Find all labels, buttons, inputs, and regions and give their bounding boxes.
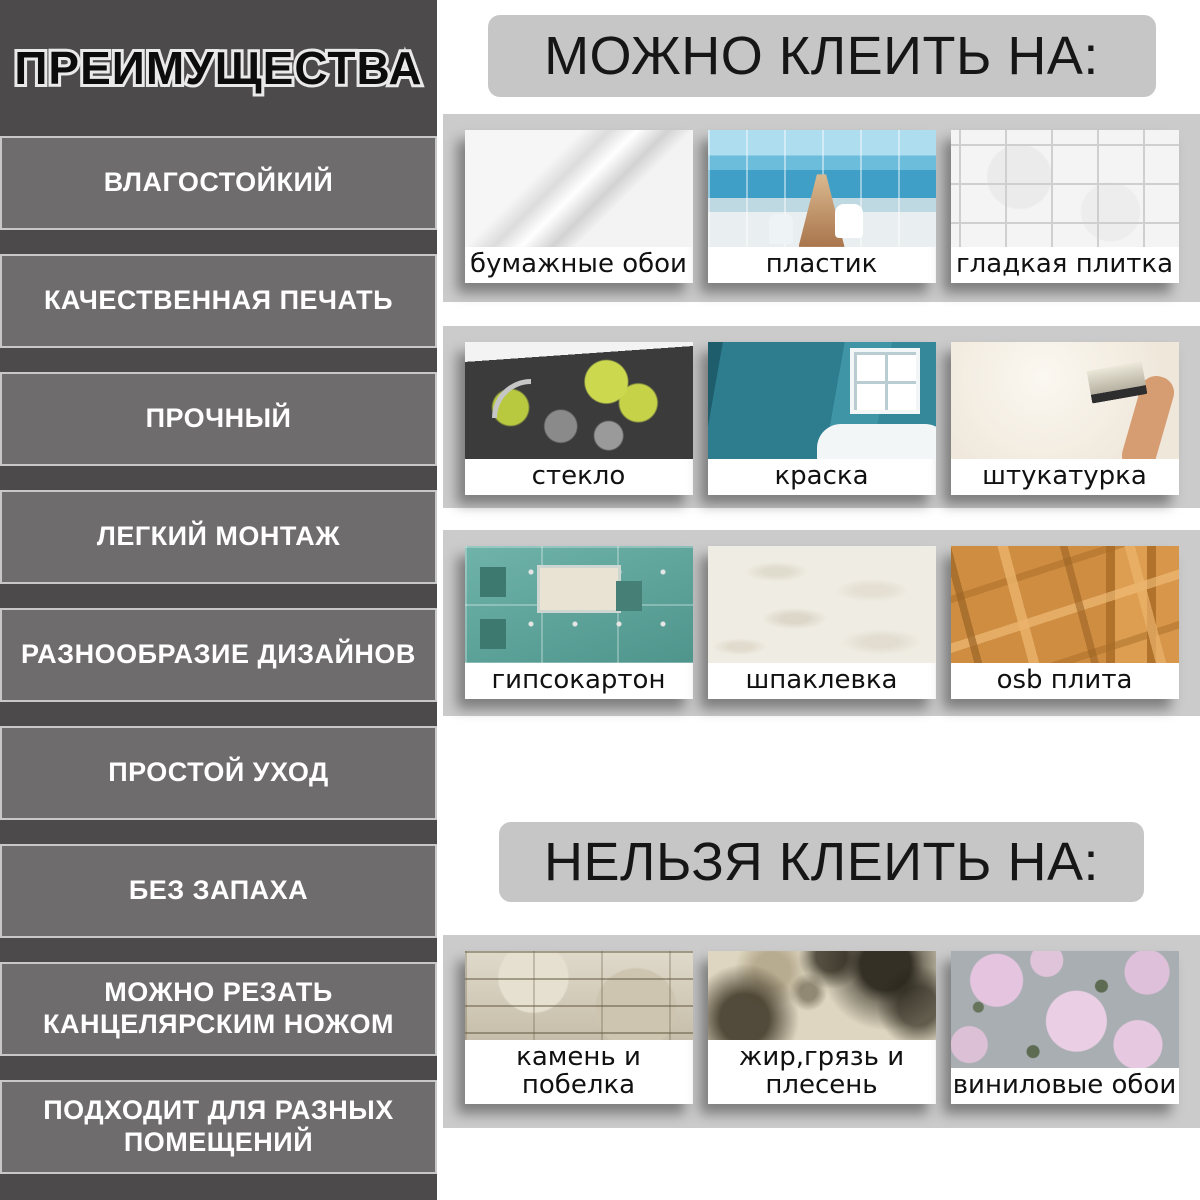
surface-card-stone-whitewash: камень и побелка (465, 951, 693, 1104)
cannot-glue-header: НЕЛЬЗЯ КЛЕИТЬ НА: (499, 822, 1144, 902)
stone-wall-photo (465, 951, 693, 1040)
surface-card-paint: краска (708, 342, 936, 495)
surface-label: жир,грязь и плесень (708, 1040, 936, 1104)
surface-label: краска (708, 459, 936, 495)
surface-label: стекло (465, 459, 693, 495)
osb-board-photo (951, 546, 1179, 663)
infographic-root: ПРЕИМУЩЕСТВА ВЛАГОСТОЙКИЙ КАЧЕСТВЕННАЯ П… (0, 0, 1200, 1200)
surface-card-putty: шпаклевка (708, 546, 936, 699)
advantage-item-easy-care: ПРОСТОЙ УХОД (0, 726, 437, 820)
can-glue-header: МОЖНО КЛЕИТЬ НА: (488, 15, 1156, 97)
surface-label: пластик (708, 247, 936, 283)
advantage-item-waterproof: ВЛАГОСТОЙКИЙ (0, 136, 437, 230)
surface-card-drywall: гипсокартон (465, 546, 693, 699)
surface-card-paper-wallpaper: бумажные обои (465, 130, 693, 283)
surface-label: виниловые обои (951, 1068, 1179, 1104)
grease-dirt-mold-photo (708, 951, 936, 1040)
drywall-photo (465, 546, 693, 663)
surface-label: гладкая плитка (951, 247, 1179, 283)
advantage-item-no-smell: БЕЗ ЗАПАХА (0, 844, 437, 938)
surface-label: штукатурка (951, 459, 1179, 495)
surface-card-plastic: пластик (708, 130, 936, 283)
surface-card-vinyl-wallpaper: виниловые обои (951, 951, 1179, 1104)
surface-card-grease-dirt-mold: жир,грязь и плесень (708, 951, 936, 1104)
surface-card-glass: стекло (465, 342, 693, 495)
surfaces-panel: МОЖНО КЛЕИТЬ НА: бумажные обои пластик г… (437, 0, 1200, 1200)
surface-card-plaster: штукатурка (951, 342, 1179, 495)
advantage-item-any-room: ПОДХОДИТ ДЛЯ РАЗНЫХ ПОМЕЩЕНИЙ (0, 1080, 437, 1174)
advantage-item-cut-with-knife: МОЖНО РЕЗАТЬ КАНЦЕЛЯРСКИМ НОЖОМ (0, 962, 437, 1056)
smooth-tile-photo (951, 130, 1179, 247)
surface-card-smooth-tile: гладкая плитка (951, 130, 1179, 283)
surface-label: бумажные обои (465, 247, 693, 283)
plastering-photo (951, 342, 1179, 459)
putty-texture-photo (708, 546, 936, 663)
advantage-item-quality-print: КАЧЕСТВЕННАЯ ПЕЧАТЬ (0, 254, 437, 348)
advantages-sidebar: ПРЕИМУЩЕСТВА ВЛАГОСТОЙКИЙ КАЧЕСТВЕННАЯ П… (0, 0, 437, 1200)
surface-label: osb плита (951, 663, 1179, 699)
surface-label: камень и побелка (465, 1040, 693, 1104)
advantage-item-durable: ПРОЧНЫЙ (0, 372, 437, 466)
advantage-item-design-variety: РАЗНООБРАЗИЕ ДИЗАЙНОВ (0, 608, 437, 702)
vinyl-wallpaper-photo (951, 951, 1179, 1068)
can-glue-row-3: гипсокартон шпаклевка osb плита (443, 530, 1200, 716)
painted-wall-photo (708, 342, 936, 459)
plastic-panel-photo (708, 130, 936, 247)
advantages-list: ВЛАГОСТОЙКИЙ КАЧЕСТВЕННАЯ ПЕЧАТЬ ПРОЧНЫЙ… (0, 136, 437, 1174)
advantage-item-easy-install: ЛЕГКИЙ МОНТАЖ (0, 490, 437, 584)
can-glue-row-2: стекло краска штукатурка (443, 326, 1200, 508)
surface-card-osb: osb плита (951, 546, 1179, 699)
glass-splashback-photo (465, 342, 693, 459)
advantages-title: ПРЕИМУЩЕСТВА (14, 41, 422, 95)
can-glue-row-1: бумажные обои пластик гладкая плитка (443, 114, 1200, 302)
paper-wallpaper-photo (465, 130, 693, 247)
surface-label: шпаклевка (708, 663, 936, 699)
cannot-glue-row: камень и побелка жир,грязь и плесень вин… (443, 935, 1200, 1128)
surface-label: гипсокартон (465, 663, 693, 699)
advantages-title-wrap: ПРЕИМУЩЕСТВА (0, 0, 437, 136)
